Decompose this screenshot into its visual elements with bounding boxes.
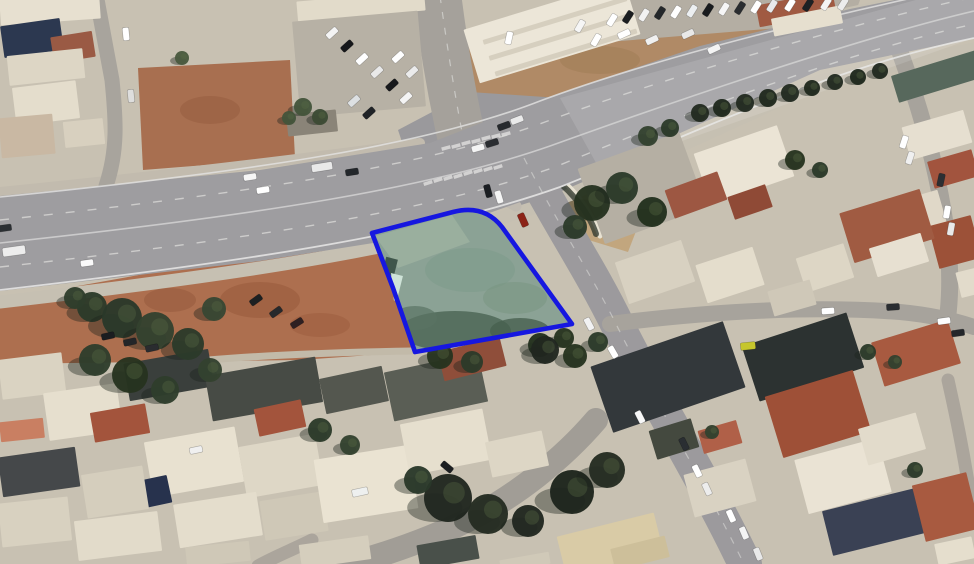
parcel-vegetation [483,282,547,314]
car [821,307,834,314]
tree-highlight [484,501,502,519]
tree-highlight [766,92,774,100]
tree-highlight [894,357,900,363]
tree-highlight [562,331,571,340]
building [0,114,56,159]
car [80,259,94,267]
tree-highlight [603,458,619,474]
tree-highlight [833,77,840,84]
tree-highlight [913,465,920,472]
tree-highlight [126,363,142,379]
tree-highlight [301,101,309,109]
tree-highlight [208,362,219,373]
tree-highlight [573,348,584,359]
car [937,317,951,325]
car [951,329,965,337]
tree-highlight [698,107,706,115]
satellite-scene [0,0,974,564]
tree-highlight [185,333,199,347]
tree-highlight [288,113,294,119]
tree-highlight [720,102,728,110]
tree-highlight [89,297,103,311]
tree-highlight [596,335,605,344]
tree-highlight [348,438,357,447]
tree-highlight [73,291,83,301]
tree-highlight [118,305,136,323]
tree-highlight [318,422,329,433]
tree-highlight [92,349,106,363]
building [63,118,105,148]
tree-highlight [318,112,325,119]
car [886,303,899,310]
map-viewport [0,0,974,564]
tree-highlight [856,72,863,79]
tree-highlight [151,318,168,335]
tree-highlight [573,219,584,230]
tree-highlight [619,177,633,191]
tree-highlight [743,97,751,105]
car [127,89,135,103]
tree-highlight [711,427,717,433]
tree-highlight [443,482,465,504]
tree-highlight [649,202,663,216]
tree-highlight [542,341,555,354]
tree-highlight [793,153,802,162]
tree-highlight [212,301,223,312]
tree-highlight [415,471,428,484]
tree-highlight [162,381,175,394]
tree-highlight [866,347,873,354]
tree-highlight [470,355,480,365]
building [0,496,72,547]
dirt-spot [144,288,196,312]
tree-highlight [668,122,676,130]
tree-highlight [525,510,539,524]
tree-highlight [646,129,655,138]
road-vertical-top[interactable] [437,0,462,140]
car [740,341,756,350]
tree-highlight [810,83,817,90]
car [122,27,130,41]
dirt-spot [180,96,240,124]
tree-highlight [181,53,187,59]
tree-highlight [878,66,885,73]
tree-highlight [788,87,796,95]
tree-highlight [818,165,825,172]
